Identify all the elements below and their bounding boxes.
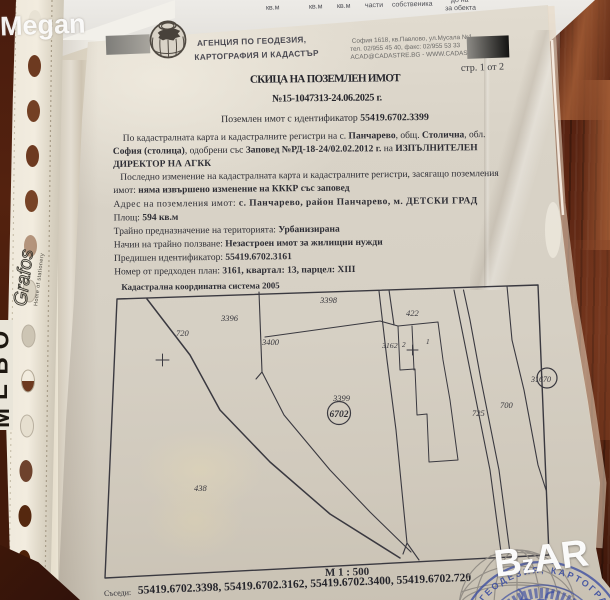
svg-text:Предишен идентификатор: 55419.: Предишен идентификатор: 55419.6702.3161 <box>114 251 292 264</box>
svg-text:3400: 3400 <box>261 337 280 347</box>
svg-text:3396: 3396 <box>220 313 239 323</box>
svg-text:Номер от предходен план: 3161,: Номер от предходен план: 3161, квартал: … <box>114 265 356 278</box>
svg-text:6702: 6702 <box>330 410 349 420</box>
svg-text:31670: 31670 <box>530 375 551 384</box>
svg-text:Последно изменение на кадастра: Последно изменение на кадастралната карт… <box>120 169 499 183</box>
svg-text:Кадастрална координатна систем: Кадастрална координатна система 2005 <box>121 280 280 292</box>
svg-text:По кадастралната карта и кадас: По кадастралната карта и кадастралните р… <box>123 129 486 144</box>
svg-text:Трайно предназначение на терит: Трайно предназначение на територията: Ур… <box>114 224 340 237</box>
svg-text:700: 700 <box>500 400 514 410</box>
svg-text:725: 725 <box>472 408 485 418</box>
svg-text:стр. 1 от 2: стр. 1 от 2 <box>461 61 505 73</box>
svg-text:КАРТОГРАФИЯ И КАДАСТЪР: КАРТОГРАФИЯ И КАДАСТЪР <box>194 49 319 62</box>
svg-text:№15-1047313-24.06.2025 г.: №15-1047313-24.06.2025 г. <box>272 92 383 104</box>
svg-text:Площ: 594 кв.м: Площ: 594 кв.м <box>114 213 179 224</box>
svg-text:438: 438 <box>194 483 208 493</box>
svg-text:София (столица), одобрени със: София (столица), одобрени със Заповед №Р… <box>113 142 478 157</box>
svg-text:Начин на трайно ползване: Неза: Начин на трайно ползване: Незастроен имо… <box>114 237 383 251</box>
svg-text:СКИЦА НА ПОЗЕМЛЕН ИМОТ: СКИЦА НА ПОЗЕМЛЕН ИМОТ <box>250 72 401 86</box>
svg-text:Поземлен имот с идентификатор: Поземлен имот с идентификатор 55419.6702… <box>221 112 429 125</box>
svg-text:Съседи:: Съседи: <box>104 588 131 598</box>
svg-text:55419.6702.3398, 55419.6702.31: 55419.6702.3398, 55419.6702.3162, 55419.… <box>138 572 472 597</box>
svg-text:2: 2 <box>402 341 406 349</box>
svg-text:ДИРЕКТОР НА АГКК: ДИРЕКТОР НА АГКК <box>113 159 211 170</box>
svg-text:3162: 3162 <box>381 341 398 350</box>
svg-text:3398: 3398 <box>319 295 338 305</box>
svg-text:422: 422 <box>406 308 420 318</box>
svg-text:720: 720 <box>176 328 190 338</box>
svg-text:3399: 3399 <box>332 393 351 403</box>
svg-text:имот: няма извършено изменение: имот: няма извършено изменение на КККР с… <box>113 184 349 196</box>
svg-text:Адрес на поземления имот: с. П: Адрес на поземления имот: с. Панчарево, … <box>113 195 477 210</box>
svg-text:1: 1 <box>426 338 430 346</box>
svg-text:АГЕНЦИЯ ПО ГЕОДЕЗИЯ,: АГЕНЦИЯ ПО ГЕОДЕЗИЯ, <box>197 35 307 48</box>
